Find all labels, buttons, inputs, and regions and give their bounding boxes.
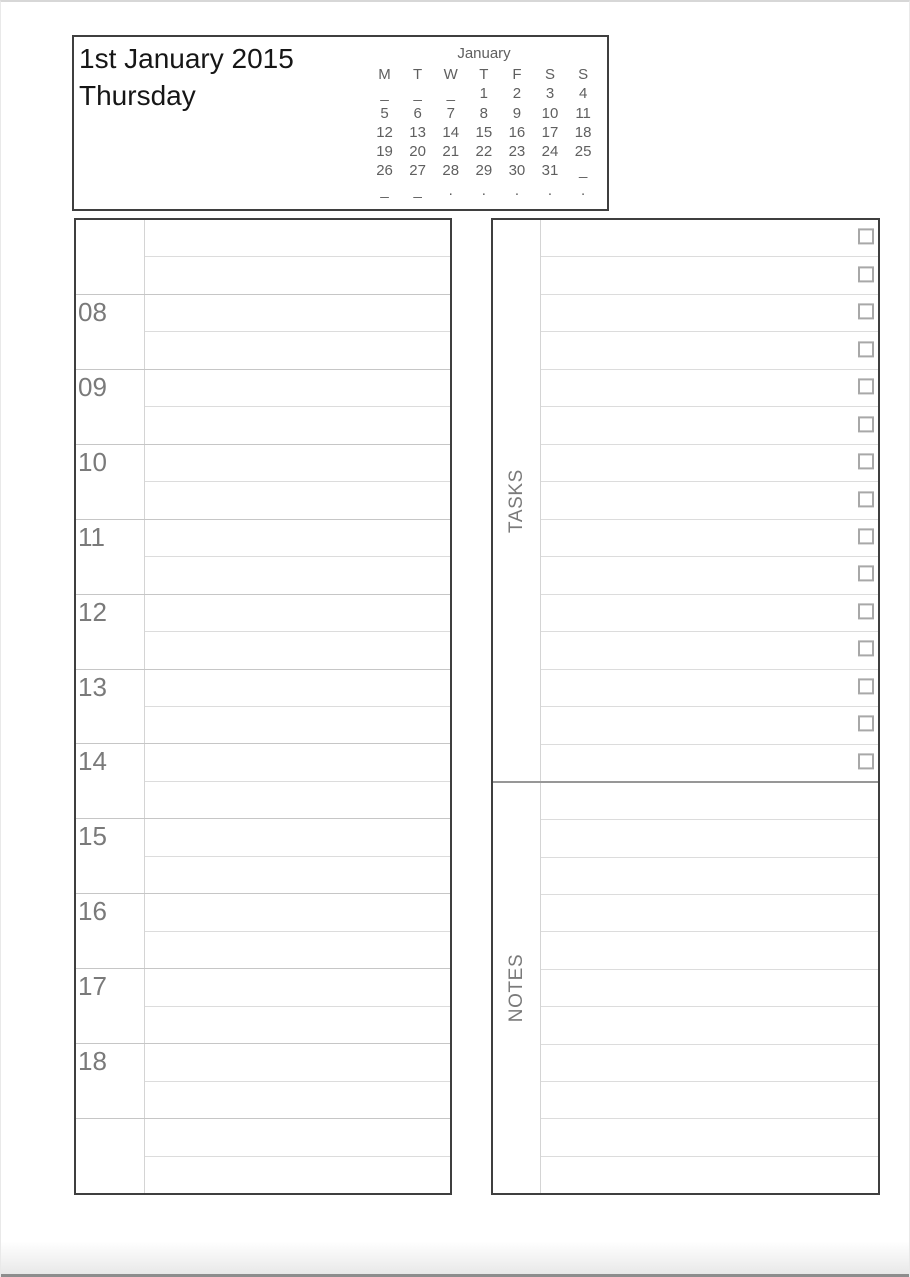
task-row [541, 220, 878, 257]
calendar-day-cell: . [434, 181, 467, 200]
hour-block: 16 [76, 893, 450, 968]
task-checkbox[interactable] [858, 716, 874, 732]
task-checkbox[interactable] [858, 566, 874, 582]
hour-slot [145, 295, 450, 369]
task-checkbox[interactable] [858, 753, 874, 769]
calendar-day-cell: _ [567, 161, 600, 180]
task-row [541, 370, 878, 407]
hour-label: 11 [76, 520, 145, 594]
note-row [541, 1045, 878, 1082]
calendar-day-cell: 7 [434, 104, 467, 123]
date-title: 1st January 2015 Thursday [79, 40, 294, 114]
note-row [541, 858, 878, 895]
calendar-day-cell: 30 [500, 161, 533, 180]
notes-section: NOTES [493, 783, 878, 1193]
calendar-weekday: S [567, 65, 600, 84]
hour-slot [145, 894, 450, 968]
task-checkbox[interactable] [858, 379, 874, 395]
half-hour-slot [145, 1119, 450, 1155]
hour-label: 12 [76, 595, 145, 669]
task-checkbox[interactable] [858, 453, 874, 469]
hour-block: 18 [76, 1043, 450, 1118]
calendar-day-cell: . [567, 181, 600, 200]
calendar-day-cell: 10 [533, 104, 566, 123]
task-row [541, 632, 878, 669]
calendar-day-cell: 12 [368, 123, 401, 142]
calendar-day-cell: _ [401, 181, 434, 200]
hour-slot [145, 595, 450, 669]
half-hour-slot [145, 295, 450, 331]
calendar-day-cell: . [533, 181, 566, 200]
half-hour-slot [145, 1156, 450, 1193]
calendar-day-cell: 24 [533, 142, 566, 161]
half-hour-slot [145, 220, 450, 256]
note-row [541, 895, 878, 932]
half-hour-slot [145, 520, 450, 556]
calendar-weekday: F [500, 65, 533, 84]
task-checkbox[interactable] [858, 229, 874, 245]
tasks-rows [541, 220, 878, 781]
hour-slot [145, 220, 450, 294]
calendar-day-cell: 20 [401, 142, 434, 161]
calendar-month-title: January [368, 42, 600, 65]
tasks-notes-panel: TASKS NOTES [491, 218, 880, 1195]
task-row [541, 595, 878, 632]
calendar-day-cell: _ [401, 84, 434, 103]
hour-label [76, 220, 145, 294]
half-hour-slot [145, 1044, 450, 1080]
tasks-label-column: TASKS [493, 220, 541, 781]
calendar-weekday: S [533, 65, 566, 84]
half-hour-slot [145, 819, 450, 855]
half-hour-slot [145, 670, 450, 706]
task-row [541, 445, 878, 482]
hour-slot [145, 520, 450, 594]
hour-block: 17 [76, 968, 450, 1043]
note-row [541, 1119, 878, 1156]
hour-label: 13 [76, 670, 145, 744]
calendar-day-cell: 19 [368, 142, 401, 161]
hour-label [76, 1119, 145, 1193]
hour-block: 14 [76, 743, 450, 818]
task-checkbox[interactable] [858, 341, 874, 357]
hour-slot [145, 1044, 450, 1118]
hour-block: 10 [76, 444, 450, 519]
header-box: 1st January 2015 Thursday January MTWTFS… [72, 35, 609, 211]
hour-block: 09 [76, 369, 450, 444]
task-row [541, 332, 878, 369]
hour-block: 13 [76, 669, 450, 744]
notes-label: NOTES [506, 954, 528, 1022]
calendar-day-cell: _ [434, 84, 467, 103]
calendar-day-cell: . [467, 181, 500, 200]
half-hour-slot [145, 556, 450, 593]
task-checkbox[interactable] [858, 678, 874, 694]
calendar-weekday: W [434, 65, 467, 84]
half-hour-slot [145, 781, 450, 818]
calendar-day-cell: 28 [434, 161, 467, 180]
calendar-day-cell: 13 [401, 123, 434, 142]
note-row [541, 970, 878, 1007]
hour-slot [145, 445, 450, 519]
half-hour-slot [145, 1006, 450, 1043]
hour-label: 10 [76, 445, 145, 519]
calendar-day-cell: 4 [567, 84, 600, 103]
calendar-day-cell: 18 [567, 123, 600, 142]
task-row [541, 670, 878, 707]
calendar-day-cell: 23 [500, 142, 533, 161]
calendar-day-cell: 14 [434, 123, 467, 142]
calendar-weekday: T [401, 65, 434, 84]
hour-block [76, 1118, 450, 1193]
calendar-day-cell: 21 [434, 142, 467, 161]
task-checkbox[interactable] [858, 491, 874, 507]
hour-block: 12 [76, 594, 450, 669]
mini-calendar-grid: MTWTFSS___123456789101112131415161718192… [368, 65, 600, 200]
hour-label: 16 [76, 894, 145, 968]
task-checkbox[interactable] [858, 416, 874, 432]
task-row [541, 295, 878, 332]
hour-label: 15 [76, 819, 145, 893]
hour-slot [145, 1119, 450, 1193]
calendar-day-cell: 5 [368, 104, 401, 123]
calendar-day-cell: . [500, 181, 533, 200]
calendar-day-cell: 17 [533, 123, 566, 142]
task-row [541, 520, 878, 557]
task-row [541, 707, 878, 744]
weekday-line: Thursday [79, 77, 294, 114]
task-row [541, 257, 878, 294]
date-line: 1st January 2015 [79, 40, 294, 77]
half-hour-slot [145, 856, 450, 893]
half-hour-slot [145, 445, 450, 481]
task-checkbox[interactable] [858, 266, 874, 282]
calendar-day-cell: 31 [533, 161, 566, 180]
hour-block: 08 [76, 294, 450, 369]
calendar-day-cell: 25 [567, 142, 600, 161]
half-hour-slot [145, 370, 450, 406]
task-checkbox[interactable] [858, 528, 874, 544]
tasks-section: TASKS [493, 220, 878, 783]
calendar-day-cell: 9 [500, 104, 533, 123]
half-hour-slot [145, 631, 450, 668]
note-row [541, 1007, 878, 1044]
calendar-day-cell: _ [368, 181, 401, 200]
hour-label: 08 [76, 295, 145, 369]
half-hour-slot [145, 706, 450, 743]
half-hour-slot [145, 894, 450, 930]
calendar-day-cell: 22 [467, 142, 500, 161]
note-row [541, 820, 878, 857]
calendar-day-cell: _ [368, 84, 401, 103]
task-row [541, 745, 878, 781]
task-row [541, 557, 878, 594]
calendar-day-cell: 26 [368, 161, 401, 180]
calendar-day-cell: 27 [401, 161, 434, 180]
calendar-day-cell: 15 [467, 123, 500, 142]
hour-slot [145, 370, 450, 444]
notes-label-column: NOTES [493, 783, 541, 1193]
hour-block: 11 [76, 519, 450, 594]
half-hour-slot [145, 256, 450, 293]
task-checkbox[interactable] [858, 603, 874, 619]
mini-calendar: January MTWTFSS___1234567891011121314151… [368, 42, 600, 200]
half-hour-slot [145, 931, 450, 968]
hour-slot [145, 969, 450, 1043]
calendar-day-cell: 16 [500, 123, 533, 142]
note-row [541, 1082, 878, 1119]
task-row [541, 407, 878, 444]
hour-block [76, 220, 450, 294]
hour-slot [145, 744, 450, 818]
calendar-day-cell: 8 [467, 104, 500, 123]
tasks-label: TASKS [506, 469, 528, 533]
calendar-day-cell: 1 [467, 84, 500, 103]
hour-label: 18 [76, 1044, 145, 1118]
hour-label: 17 [76, 969, 145, 1043]
hour-label: 09 [76, 370, 145, 444]
note-row [541, 783, 878, 820]
schedule-panel: 0809101112131415161718 [74, 218, 452, 1195]
half-hour-slot [145, 481, 450, 518]
hour-slot [145, 819, 450, 893]
half-hour-slot [145, 595, 450, 631]
task-checkbox[interactable] [858, 641, 874, 657]
page-bottom-edge [1, 1241, 909, 1277]
calendar-day-cell: 11 [567, 104, 600, 123]
calendar-weekday: M [368, 65, 401, 84]
hour-block: 15 [76, 818, 450, 893]
half-hour-slot [145, 1081, 450, 1118]
calendar-day-cell: 29 [467, 161, 500, 180]
hour-slot [145, 670, 450, 744]
task-row [541, 482, 878, 519]
calendar-day-cell: 6 [401, 104, 434, 123]
calendar-day-cell: 3 [533, 84, 566, 103]
planner-page: 1st January 2015 Thursday January MTWTFS… [0, 0, 910, 1277]
half-hour-slot [145, 969, 450, 1005]
hour-label: 14 [76, 744, 145, 818]
task-checkbox[interactable] [858, 304, 874, 320]
half-hour-slot [145, 406, 450, 443]
note-row [541, 1157, 878, 1193]
half-hour-slot [145, 744, 450, 780]
note-row [541, 932, 878, 969]
notes-rows [541, 783, 878, 1193]
calendar-day-cell: 2 [500, 84, 533, 103]
calendar-weekday: T [467, 65, 500, 84]
half-hour-slot [145, 331, 450, 368]
